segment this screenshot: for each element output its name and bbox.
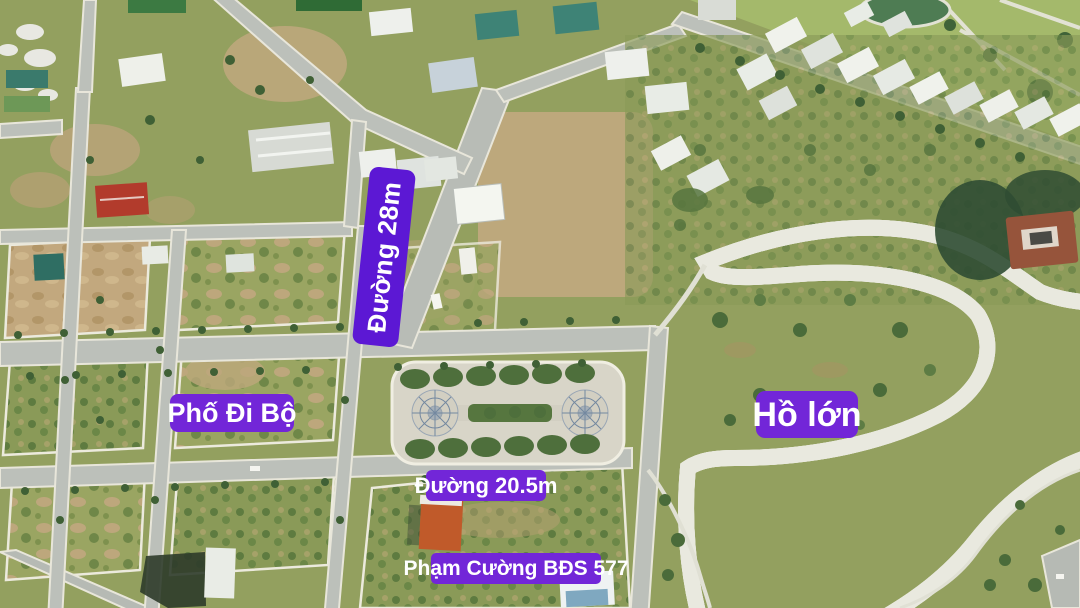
label-big-lake: Hồ lớn xyxy=(756,391,858,438)
aerial-scene xyxy=(0,0,1080,608)
label-walking-street: Phố Đi Bộ xyxy=(170,394,294,432)
label-agency: Phạm Cường BĐS 577 xyxy=(431,553,601,584)
walking-street-park xyxy=(392,362,624,464)
label-road-20-5m: Đường 20.5m xyxy=(426,470,546,501)
car xyxy=(1056,574,1064,579)
aerial-photo: Đường 28m Phố Đi Bộ Hồ lớn Đường 20.5m P… xyxy=(0,0,1080,608)
car xyxy=(250,466,260,471)
